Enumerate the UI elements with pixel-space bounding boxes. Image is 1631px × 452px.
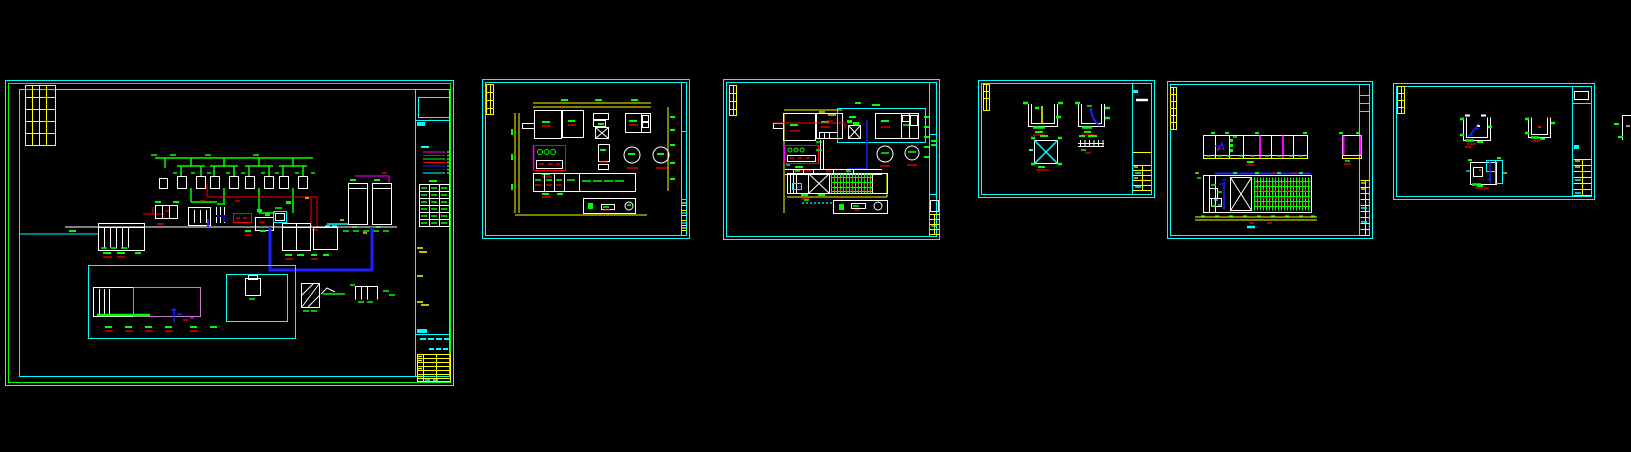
- sludge-basin-group: [89, 266, 296, 339]
- buildings: [774, 114, 843, 141]
- wall-detail: [1339, 133, 1362, 164]
- drawing-register-strip: [984, 85, 990, 111]
- sheet-1-drawing: [5, 80, 454, 386]
- sheet-1-process-flow-diagram[interactable]: [5, 80, 454, 386]
- detail-linework: [1460, 116, 1555, 189]
- drawing-register-strip: [26, 86, 56, 146]
- sheet-frame: [6, 81, 454, 386]
- sheet-7-partial[interactable]: [1614, 112, 1631, 146]
- pump-room: [834, 201, 888, 214]
- title-block-column: [1133, 90, 1152, 191]
- gate-detail-x-square: [1029, 136, 1062, 170]
- detail-linework: [1023, 103, 1110, 170]
- dosing-mixer-vessels: [160, 177, 308, 189]
- clarifier-circles: [624, 147, 669, 168]
- drawing-register-strip: [1171, 88, 1177, 130]
- sheet-2-drawing: [482, 79, 690, 239]
- sheet-frame: [724, 80, 940, 240]
- sheet-3-drawing: [723, 79, 940, 240]
- pipe-legend: [421, 147, 450, 173]
- sheet-frame: [1394, 84, 1595, 200]
- tank-row: [534, 174, 636, 192]
- drawing-register-strip: [487, 85, 494, 115]
- sheet-6-tank-details[interactable]: [1393, 83, 1595, 200]
- blower-skid: [847, 117, 861, 139]
- sheet-3-piping-layout-plan[interactable]: [723, 79, 940, 240]
- equipment-table: [420, 181, 450, 227]
- sheet-4-drawing: [978, 80, 1155, 198]
- sheet-5-longitudinal-sections[interactable]: [1167, 81, 1373, 239]
- main-blue-pipe: [270, 227, 372, 270]
- tank-detail-2: [1525, 118, 1555, 142]
- dimension-chain: [1195, 216, 1317, 227]
- sheet-6-drawing: [1393, 83, 1595, 200]
- sheet-7-fragment: [1614, 112, 1631, 146]
- section-linework: [1195, 133, 1362, 227]
- equalization-tanks: [283, 224, 338, 251]
- intake-screen-tank: [99, 224, 145, 251]
- title-block-column: [930, 141, 940, 235]
- sheet-5-drawing: [1167, 81, 1373, 239]
- filter-tanks: [343, 173, 392, 231]
- pump-room: [584, 199, 636, 214]
- handrail-detail: [1078, 136, 1104, 153]
- tank-detail-1: [1460, 116, 1492, 148]
- tank-detail-3: [1466, 158, 1507, 188]
- sheet-4-equipment-details[interactable]: [978, 80, 1155, 198]
- tank-section-detail-a: [1023, 103, 1063, 135]
- flow-diagram-linework: [19, 155, 397, 339]
- dewatering-group: [302, 284, 396, 312]
- title-block-column: [417, 98, 451, 382]
- drawing-register-strip: [1398, 87, 1405, 114]
- title-block-column: [682, 203, 687, 231]
- dosing-room: [534, 146, 566, 178]
- plan-linework: [512, 100, 675, 215]
- title-block-column: [1574, 92, 1592, 196]
- section-1: [1203, 133, 1308, 165]
- revision-table: [418, 355, 451, 382]
- aeration-basin: [788, 174, 888, 194]
- tank-section-detail-b: [1075, 103, 1110, 135]
- clarifier-circles: [877, 146, 919, 166]
- title-block-column: [1360, 96, 1370, 236]
- control-building: [876, 114, 919, 139]
- dosing-room: [785, 146, 819, 171]
- sheet-frame: [1168, 82, 1373, 239]
- sheet-2-plant-layout-plan[interactable]: [482, 79, 690, 239]
- sheet-frame: [979, 81, 1155, 198]
- cad-model-space[interactable]: [0, 0, 1631, 452]
- plan-linework: [774, 103, 930, 214]
- section-2-aeration: [1204, 173, 1312, 213]
- drawing-register-strip: [730, 86, 737, 116]
